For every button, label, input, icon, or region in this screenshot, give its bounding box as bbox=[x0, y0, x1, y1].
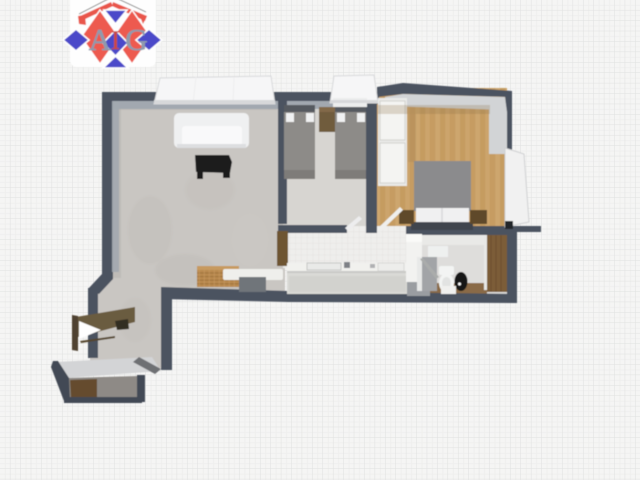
svg-text:A: A bbox=[89, 22, 112, 57]
svg-text:G: G bbox=[125, 22, 147, 57]
svg-text:I: I bbox=[111, 26, 120, 55]
